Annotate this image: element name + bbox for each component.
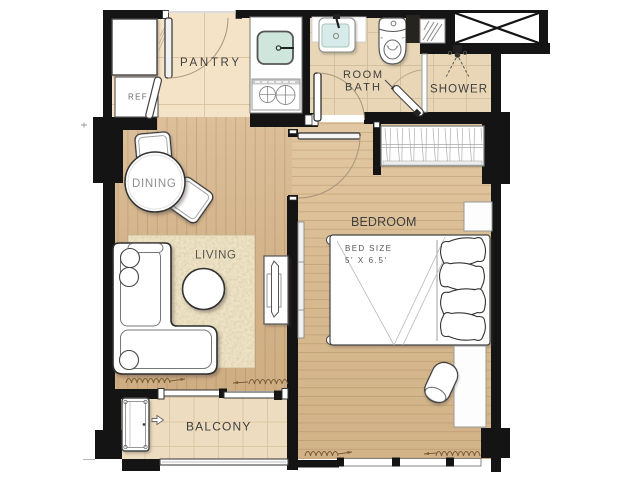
svg-text:BATH: BATH [345,82,382,94]
svg-text:BED SIZE: BED SIZE [345,244,392,253]
svg-text:BEDROOM: BEDROOM [351,215,419,229]
svg-text:LIVING: LIVING [195,250,239,262]
svg-text:DINING: DINING [132,178,178,190]
svg-text:SHOWER: SHOWER [430,84,489,96]
svg-text:BALCONY: BALCONY [186,420,253,434]
svg-text:PANTRY: PANTRY [180,57,242,69]
svg-text:5' X 6.5': 5' X 6.5' [345,256,387,265]
svg-text:REF: REF [128,93,148,102]
svg-text:ROOM: ROOM [343,69,384,81]
